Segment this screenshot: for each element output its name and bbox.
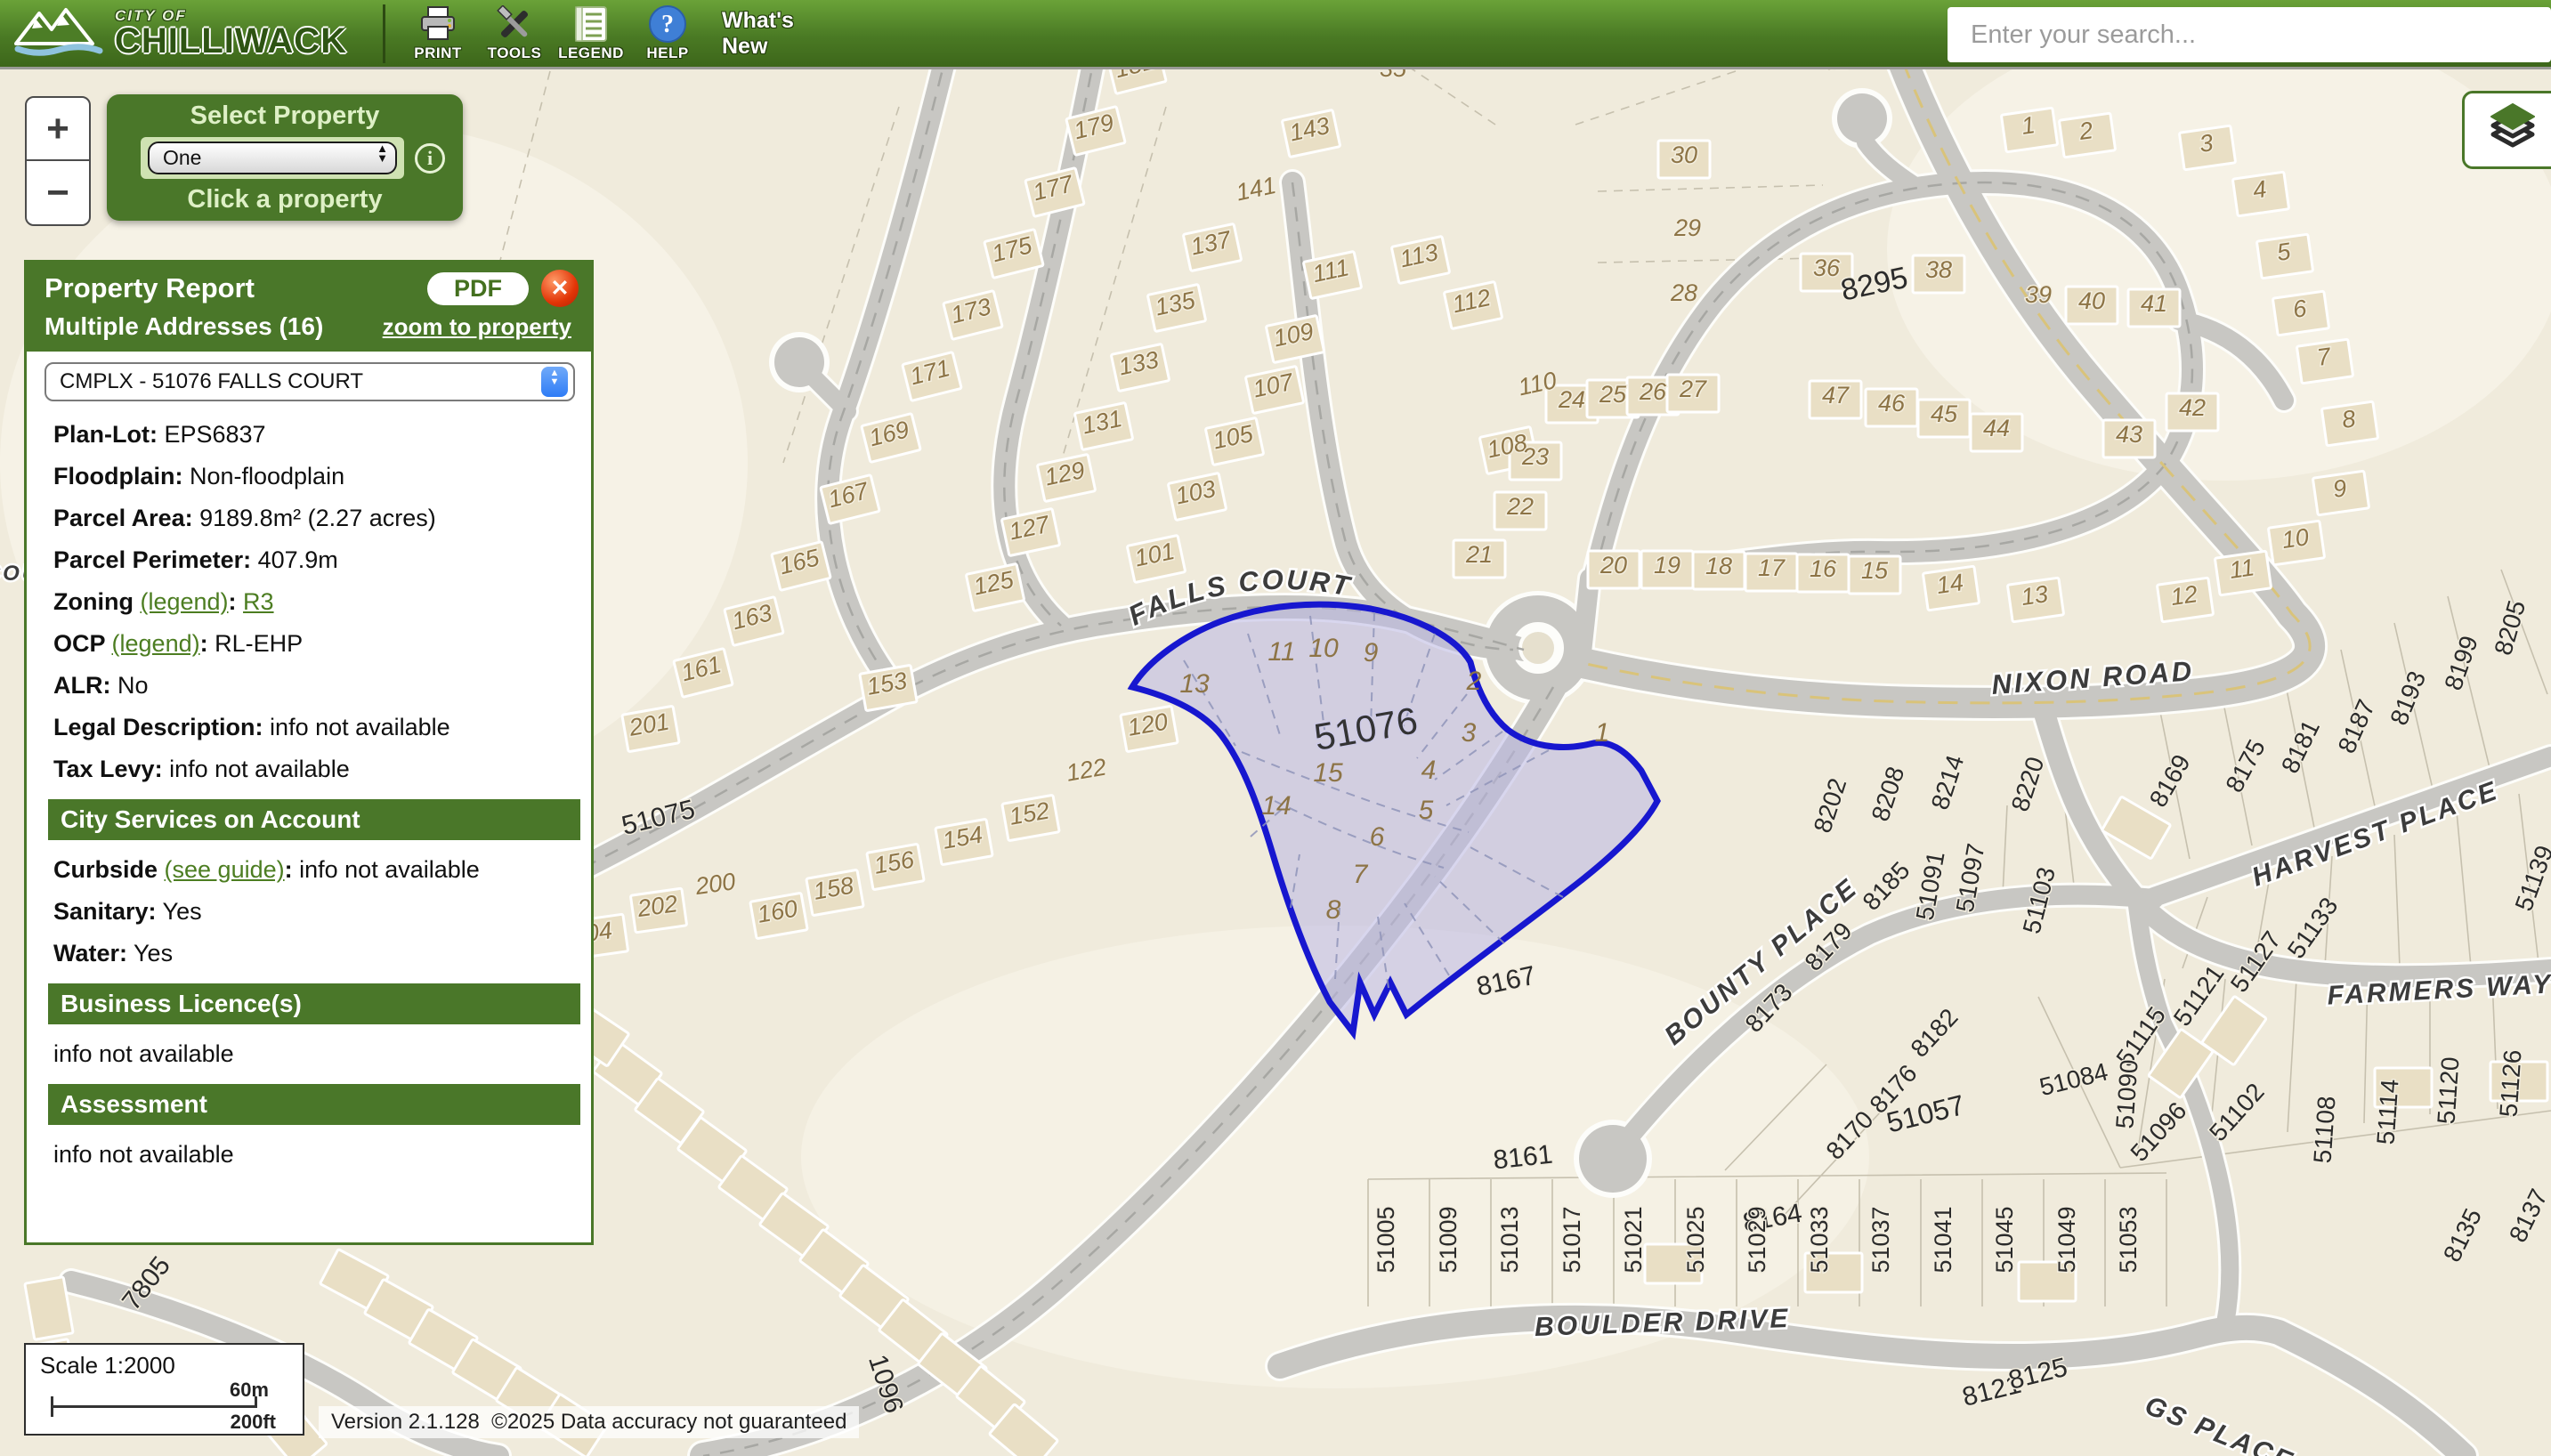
- house-number-label: 43: [2116, 421, 2142, 448]
- report-field-row: Plan-Lot: EPS6837: [27, 414, 591, 456]
- report-title: Property Report: [45, 272, 427, 304]
- house-number-label: 44: [1983, 415, 2010, 441]
- house-number-label: 21: [1465, 541, 1493, 568]
- address-label: 51045: [1991, 1206, 2018, 1273]
- scale-imperial-label: 200ft: [231, 1411, 276, 1434]
- report-field-row: Parcel Perimeter: 407.9m: [27, 539, 591, 581]
- scale-text: Scale 1:2000: [40, 1352, 303, 1379]
- address-dropdown-value: CMPLX - 51076 FALLS COURT: [60, 369, 541, 394]
- address-label: 51041: [1930, 1206, 1956, 1273]
- report-body: Plan-Lot: EPS6837Floodplain: Non-floodpl…: [27, 405, 591, 1242]
- house-number-label: 202: [635, 890, 679, 922]
- house-number-label: 18: [1705, 553, 1732, 579]
- address-label: 51053: [2115, 1206, 2142, 1273]
- house-number-label: 200: [692, 868, 737, 900]
- address-dropdown[interactable]: CMPLX - 51076 FALLS COURT ▲▼: [45, 362, 575, 401]
- whats-new-line1: What's: [722, 8, 794, 34]
- building-footprint: [25, 1277, 73, 1340]
- report-header: Property Report PDF ✕: [27, 263, 591, 311]
- house-number-label: 45: [1931, 400, 1958, 427]
- tools-icon: [494, 4, 535, 44]
- report-field-row: Zoning (legend): R3: [27, 581, 591, 623]
- report-field-row: OCP (legend): RL-EHP: [27, 623, 591, 665]
- house-number-label: 15: [1861, 557, 1889, 584]
- report-section-header: City Services on Account: [48, 799, 580, 840]
- whats-new-line2: New: [722, 34, 794, 60]
- unit-number-label: 10: [1308, 634, 1339, 663]
- house-number-label: 29: [1673, 214, 1701, 241]
- dropdown-arrows-icon: ▲▼: [377, 149, 388, 168]
- house-number-label: 26: [1639, 378, 1667, 405]
- address-label: 51120: [2432, 1056, 2464, 1125]
- house-number-label: 38: [1925, 256, 1952, 283]
- house-number-label: 46: [1878, 390, 1906, 417]
- report-section-header: Business Licence(s): [48, 983, 580, 1024]
- select-property-strip: One ▲▼: [141, 137, 404, 179]
- house-number-label: 25: [1599, 381, 1627, 408]
- address-label: 51021: [1620, 1206, 1647, 1273]
- layers-button[interactable]: [2462, 91, 2551, 169]
- unit-number-label: 11: [1267, 637, 1295, 667]
- header-bar: CITY OF CHILLIWACK PRINT: [0, 0, 2551, 69]
- property-report-panel: Property Report PDF ✕ Multiple Addresses…: [24, 260, 594, 1245]
- layers-icon: [2484, 102, 2541, 158]
- address-label: 51005: [1373, 1206, 1399, 1273]
- zoom-controls: + −: [25, 96, 91, 226]
- house-number-label: 11: [2228, 554, 2256, 584]
- scale-metric-label: 60m: [230, 1379, 269, 1402]
- report-field-row: Water: Yes: [27, 933, 591, 975]
- help-icon: ?: [647, 4, 688, 44]
- address-label: 51049: [2053, 1206, 2080, 1273]
- house-number-label: 36: [1813, 255, 1841, 281]
- address-label: 51029: [1744, 1206, 1770, 1273]
- report-section-header: Assessment: [48, 1084, 580, 1125]
- dropdown-stepper-icon: ▲▼: [541, 367, 568, 397]
- unit-number-label: 7: [1353, 860, 1369, 889]
- report-field-row: Legal Description: info not available: [27, 707, 591, 748]
- search-input[interactable]: [1948, 7, 2551, 62]
- unit-number-label: 5: [1419, 796, 1434, 825]
- help-button[interactable]: ? HELP: [629, 1, 706, 67]
- click-a-property-label: Click a property: [107, 185, 463, 214]
- unit-number-label: 6: [1370, 822, 1385, 852]
- version-text: Version 2.1.128 ©2025 Data accuracy not …: [319, 1406, 859, 1438]
- house-number-label: 19: [1654, 552, 1680, 578]
- house-number-label: 27: [1679, 376, 1707, 402]
- report-field-row: Floodplain: Non-floodplain: [27, 456, 591, 497]
- address-label: 51090: [2110, 1058, 2142, 1129]
- address-label: 51017: [1559, 1206, 1585, 1273]
- legend-button[interactable]: LEGEND: [553, 1, 629, 67]
- zoom-out-button[interactable]: −: [27, 161, 89, 224]
- close-icon[interactable]: ✕: [541, 270, 579, 307]
- scale-tick-right: [255, 1396, 257, 1408]
- info-icon[interactable]: i: [415, 143, 445, 174]
- house-number-label: 41: [2141, 290, 2167, 317]
- zoom-to-property-link[interactable]: zoom to property: [383, 313, 571, 341]
- house-number-label: 10: [2280, 523, 2311, 554]
- house-number-label: 23: [1521, 443, 1549, 470]
- house-number-label: 24: [1558, 386, 1585, 413]
- print-button[interactable]: PRINT: [400, 1, 476, 67]
- address-label: 51009: [1435, 1206, 1462, 1273]
- report-field-row: Curbside (see guide): info not available: [27, 849, 591, 891]
- house-number-label: 22: [1506, 493, 1534, 520]
- help-label: HELP: [646, 44, 688, 62]
- house-number-label: 40: [2078, 287, 2105, 314]
- address-label: 51108: [2308, 1095, 2340, 1164]
- legend-link[interactable]: R3: [243, 588, 274, 615]
- unit-number-label: 1: [1595, 718, 1610, 748]
- mountain-logo-icon: [12, 4, 106, 63]
- select-property-dropdown[interactable]: One ▲▼: [148, 142, 397, 174]
- pdf-button[interactable]: PDF: [427, 272, 529, 305]
- address-label: 51033: [1806, 1206, 1833, 1273]
- legend-link[interactable]: (legend): [140, 588, 228, 615]
- report-field-row: ALR: No: [27, 665, 591, 707]
- legend-link[interactable]: (see guide): [165, 856, 285, 883]
- city-logo[interactable]: CITY OF CHILLIWACK: [0, 4, 383, 63]
- select-property-panel: Select Property One ▲▼ i Click a propert…: [107, 94, 463, 221]
- house-number-label: 30: [1671, 142, 1697, 168]
- report-field-row: Parcel Area: 9189.8m² (2.27 acres): [27, 497, 591, 539]
- unit-number-label: 15: [1313, 758, 1343, 788]
- house-number-label: 17: [1758, 554, 1786, 581]
- address-label: 51013: [1496, 1206, 1523, 1273]
- scale-tick-left: [51, 1396, 53, 1417]
- house-number-label: 16: [1810, 555, 1837, 582]
- header-divider: [383, 4, 385, 63]
- address-label: 8161: [1492, 1140, 1554, 1176]
- select-property-value: One: [163, 146, 377, 170]
- whats-new-link[interactable]: What's New: [722, 8, 794, 60]
- report-field-row: Tax Levy: info not available: [27, 748, 591, 790]
- house-number-label: 42: [2179, 394, 2206, 421]
- multiple-addresses-label: Multiple Addresses (16): [45, 312, 383, 341]
- house-number-label: 47: [1822, 382, 1850, 408]
- legend-icon: [571, 4, 611, 44]
- unit-number-label: 8: [1326, 895, 1341, 925]
- unit-number-label: 14: [1261, 791, 1291, 821]
- unit-number-label: 13: [1179, 669, 1210, 699]
- house-number-label: 39: [2025, 281, 2052, 308]
- unit-number-label: 9: [1364, 638, 1379, 667]
- report-subheader: Multiple Addresses (16) zoom to property: [27, 311, 591, 352]
- house-number-label: 28: [1670, 279, 1697, 306]
- scale-bar: [51, 1405, 257, 1408]
- unit-number-label: 4: [1421, 756, 1437, 785]
- unit-number-label: 3: [1462, 718, 1477, 748]
- house-number-label: 20: [1599, 552, 1627, 578]
- report-field-row: Sanitary: Yes: [27, 891, 591, 933]
- tools-button[interactable]: TOOLS: [476, 1, 553, 67]
- house-number-label: 14: [1935, 569, 1965, 599]
- svg-text:?: ?: [661, 11, 674, 38]
- legend-link[interactable]: (legend): [112, 630, 200, 657]
- tools-label: TOOLS: [488, 44, 542, 62]
- address-label: 51037: [1867, 1206, 1894, 1273]
- scale-box: Scale 1:2000 60m 200ft: [24, 1343, 304, 1436]
- address-label: 51114: [2371, 1078, 2403, 1145]
- app-window: 1811791771751731711691671651631611532012…: [0, 0, 2551, 1456]
- print-label: PRINT: [414, 44, 462, 62]
- legend-label: LEGEND: [558, 44, 624, 62]
- address-label: 51126: [2494, 1048, 2526, 1118]
- zoom-in-button[interactable]: +: [27, 98, 89, 161]
- address-label: 51025: [1682, 1206, 1709, 1273]
- house-number-label: 12: [2169, 580, 2199, 611]
- unit-number-label: 2: [1466, 667, 1482, 696]
- report-field-row: info not available: [27, 1134, 591, 1176]
- printer-icon: [417, 4, 458, 44]
- report-field-row: info not available: [27, 1033, 591, 1075]
- address-select-row: CMPLX - 51076 FALLS COURT ▲▼: [27, 352, 591, 405]
- select-property-title: Select Property: [107, 101, 463, 131]
- logo-name-text: CHILLIWACK: [115, 23, 347, 59]
- house-number-label: 13: [2020, 580, 2050, 611]
